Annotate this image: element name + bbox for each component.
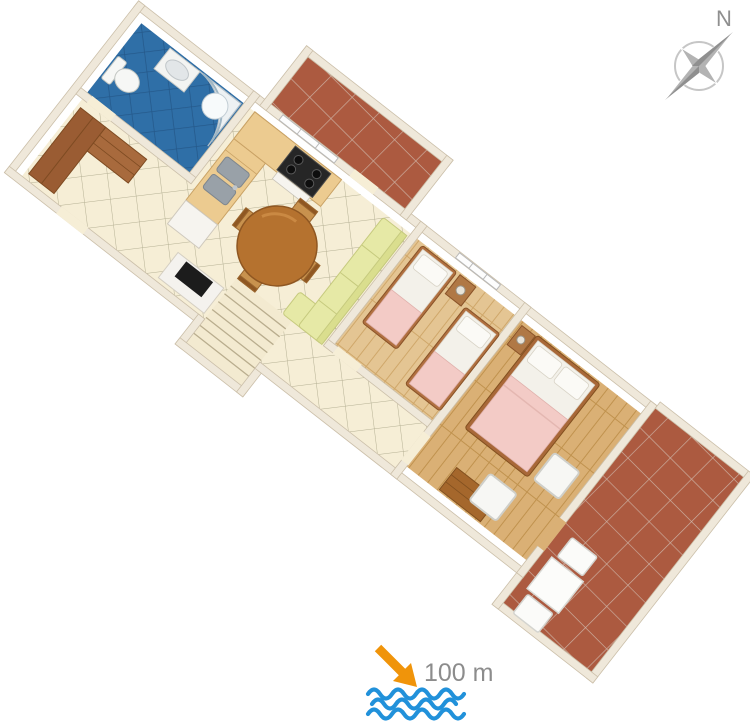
floor-plan-image: N 100 m: [0, 0, 750, 723]
apartment-plan: [0, 0, 750, 683]
compass-rose-icon: N: [665, 6, 733, 100]
distance-to-sea: 100 m: [368, 645, 493, 719]
distance-label: 100 m: [424, 659, 493, 687]
sea-waves-icon: [368, 690, 464, 719]
north-label: N: [716, 6, 732, 31]
floor-plan-svg: N 100 m: [0, 0, 750, 723]
direction-arrow-icon: [375, 645, 417, 687]
